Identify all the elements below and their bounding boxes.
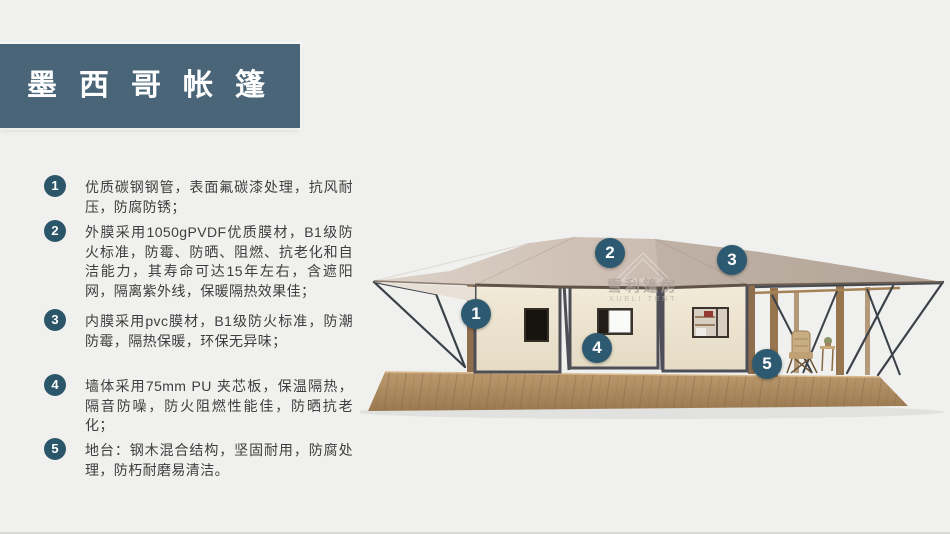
watermark-cn: 雪利篷房: [607, 277, 679, 295]
window-left: [525, 309, 548, 341]
feature-text: 外膜采用1050gPVDF优质膜材，B1级防火标准，防霉、防晒、阻燃、抗老化和自…: [85, 223, 353, 301]
slide: 墨西哥帐篷 1 优质碳钢钢管，表面氟碳漆处理，抗风耐压，防腐防锈； 2 外膜采用…: [0, 0, 950, 534]
feature-text: 墙体采用75mm PU 夹芯板，保温隔热，隔音防噪，防火阻燃性能佳，防晒抗老化；: [85, 377, 353, 436]
porch-side-table: [820, 337, 835, 371]
feature-number-badge: 1: [44, 175, 66, 197]
feature-number-badge: 2: [44, 220, 66, 242]
page-title: 墨西哥帐篷: [0, 44, 300, 128]
watermark-en: XUELI TENT: [609, 294, 677, 303]
window-middle: [598, 309, 632, 334]
feature-number-badge: 4: [44, 374, 66, 396]
callout-1-steel-pipe: 1: [461, 299, 491, 329]
tent-product-image: 雪利篷房 XUELI TENT: [360, 215, 950, 423]
wood-deck: [368, 372, 908, 411]
callout-3-inner-membrane: 3: [717, 245, 747, 275]
feature-number-badge: 5: [44, 438, 66, 460]
feature-text: 优质碳钢钢管，表面氟碳漆处理，抗风耐压，防腐防锈；: [85, 178, 353, 217]
callout-4-wall-panel: 4: [582, 333, 612, 363]
tent-illustration: 雪利篷房 XUELI TENT: [360, 215, 950, 423]
callout-2-outer-membrane: 2: [595, 238, 625, 268]
feature-text: 地台：钢木混合结构，坚固耐用，防腐处理，防朽耐磨易清洁。: [85, 441, 353, 480]
window-right: [693, 308, 728, 337]
feature-number-badge: 3: [44, 309, 66, 331]
callout-5-floor-platform: 5: [752, 349, 782, 379]
feature-text: 内膜采用pvc膜材，B1级防火标准，防潮防霉，隔热保暖，环保无异味；: [85, 312, 353, 351]
porch-post: [836, 285, 844, 375]
title-bar: 墨西哥帐篷: [0, 44, 300, 128]
